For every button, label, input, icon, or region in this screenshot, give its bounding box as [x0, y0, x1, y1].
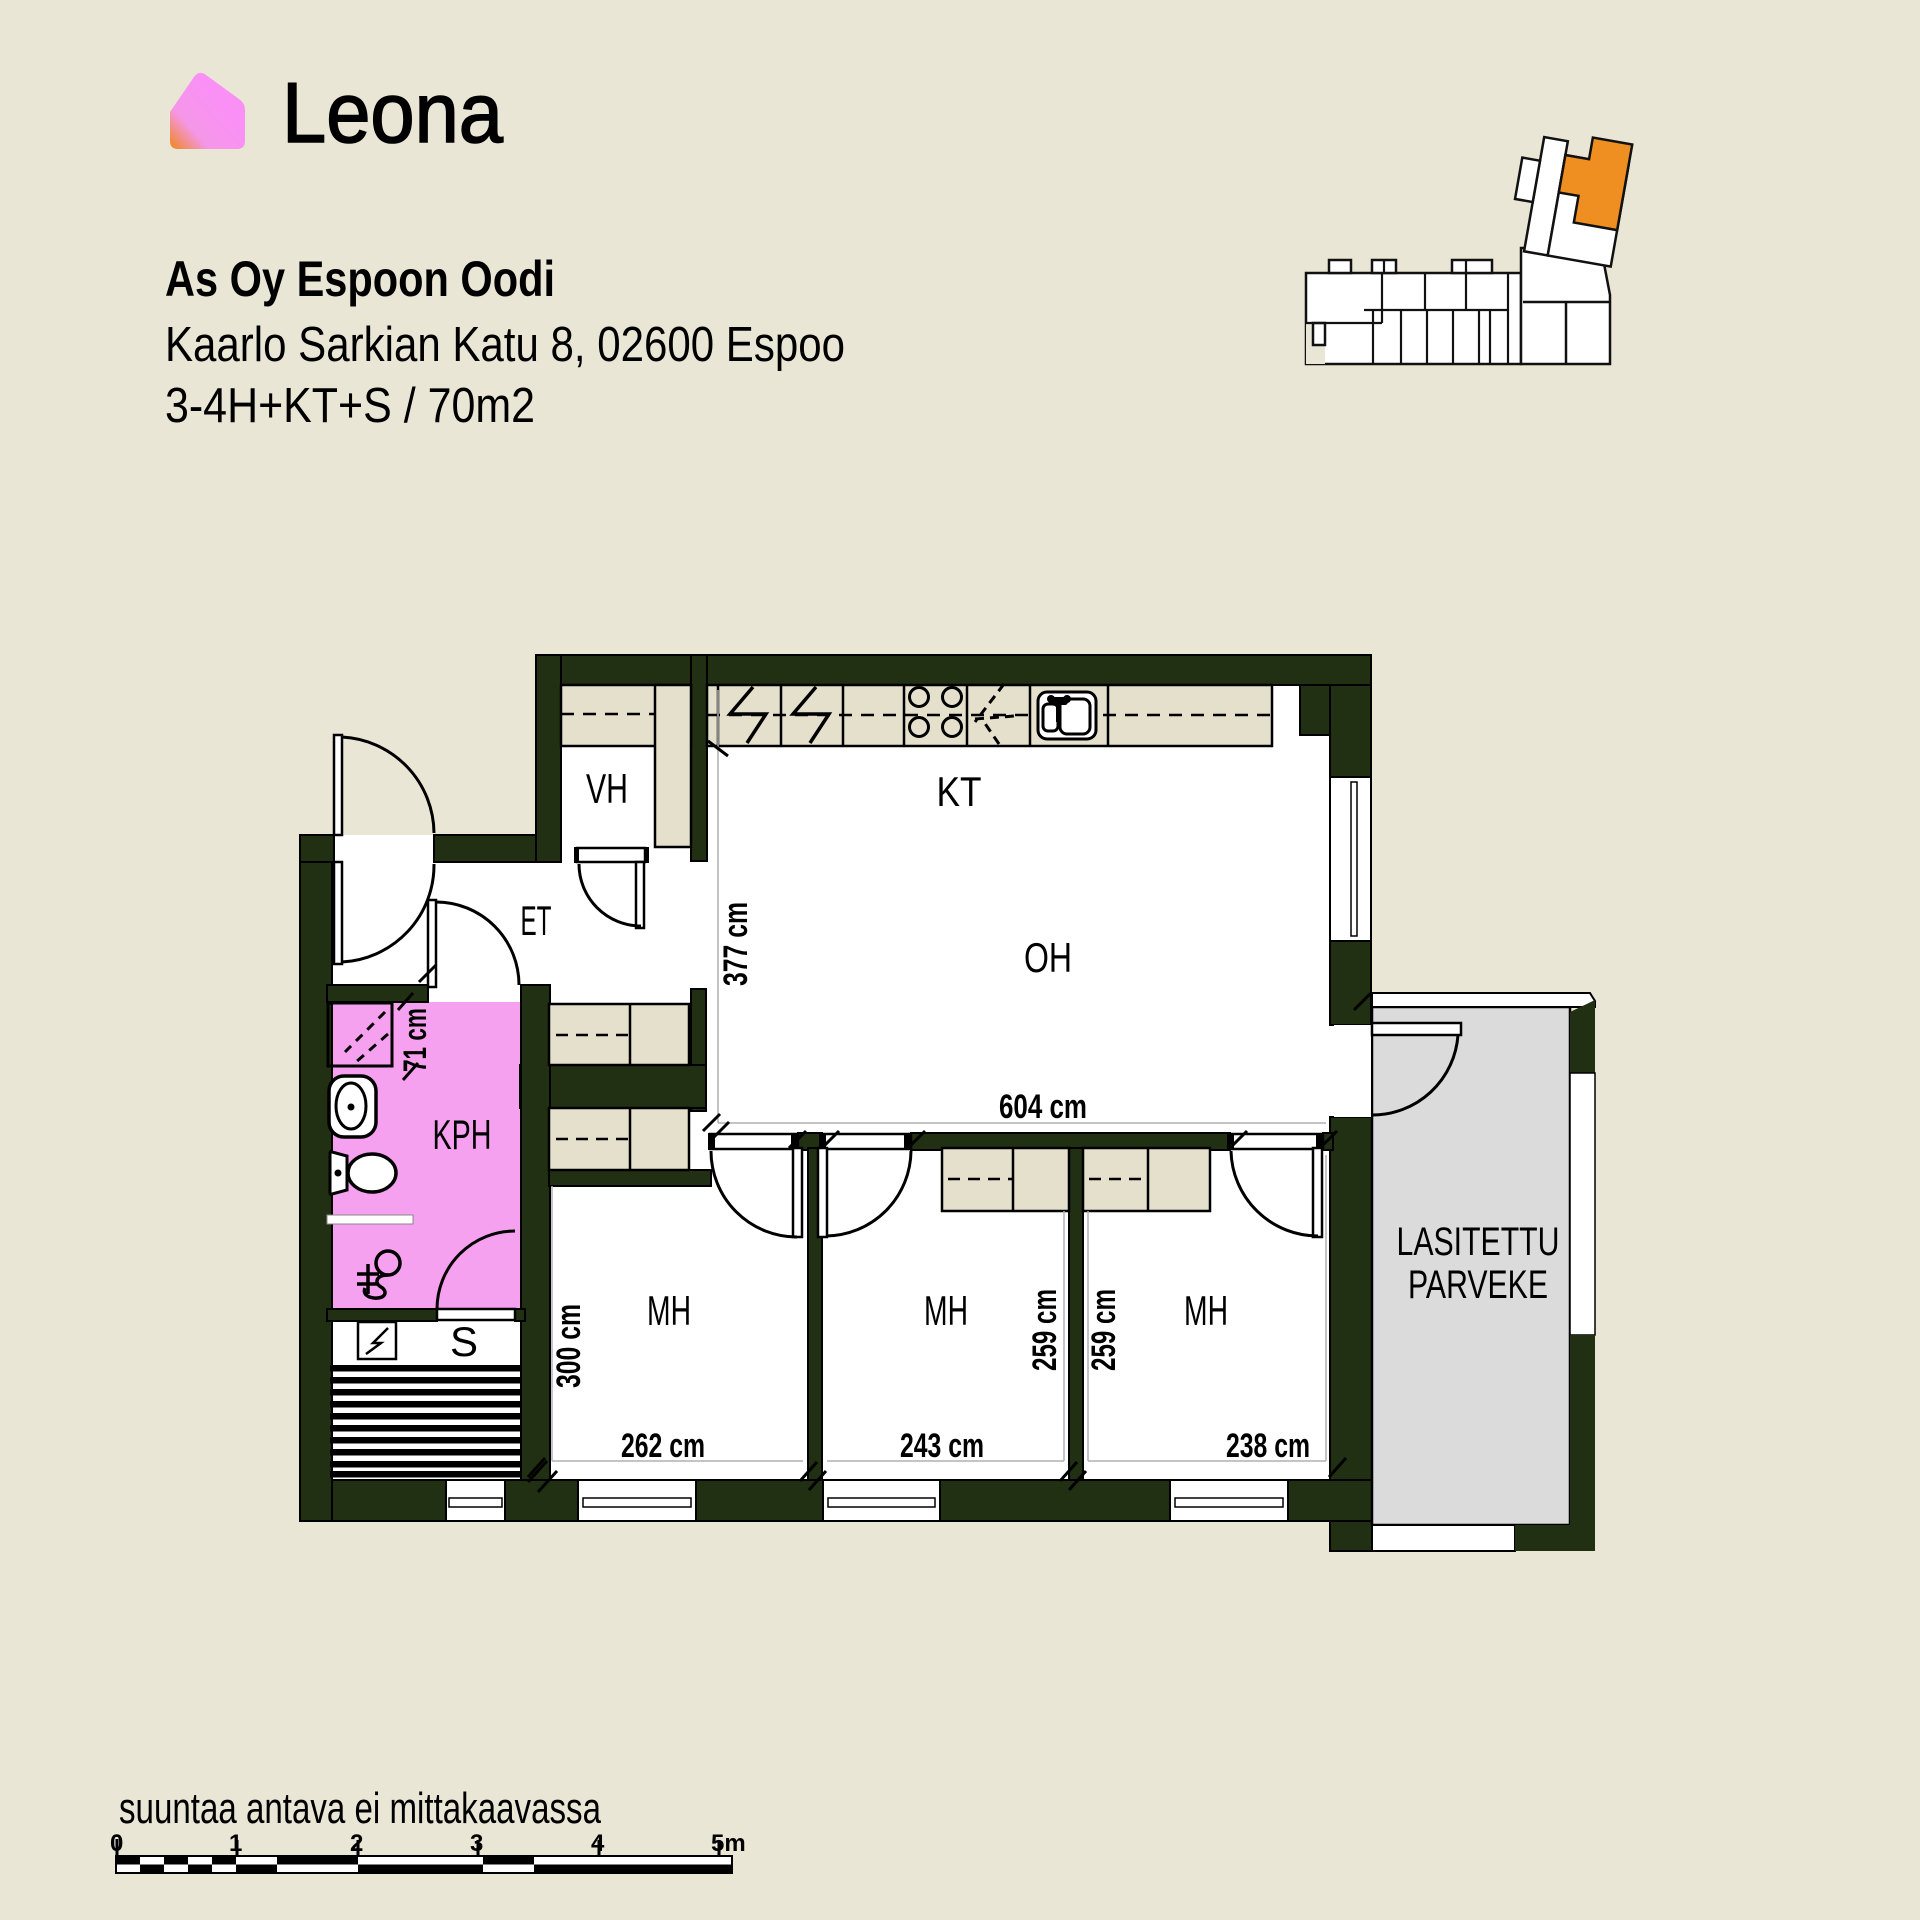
svg-text:VH: VH — [586, 765, 628, 812]
svg-text:MH: MH — [647, 1287, 691, 1334]
svg-text:238 cm: 238 cm — [1226, 1427, 1310, 1465]
svg-text:262 cm: 262 cm — [621, 1427, 705, 1465]
svg-text:71 cm: 71 cm — [397, 1008, 433, 1072]
svg-text:259 cm: 259 cm — [1085, 1289, 1123, 1371]
svg-text:ET: ET — [521, 897, 552, 944]
svg-text:As Oy Espoon Oodi: As Oy Espoon Oodi — [165, 251, 555, 307]
svg-text:3-4H+KT+S / 70m2: 3-4H+KT+S / 70m2 — [165, 379, 535, 433]
svg-text:243 cm: 243 cm — [900, 1427, 984, 1465]
svg-text:MH: MH — [1184, 1287, 1228, 1334]
svg-text:PARVEKE: PARVEKE — [1408, 1263, 1548, 1307]
svg-text:LASITETTU: LASITETTU — [1397, 1220, 1560, 1264]
svg-text:5m: 5m — [711, 1830, 746, 1857]
svg-text:OH: OH — [1024, 934, 1072, 981]
svg-text:KPH: KPH — [433, 1111, 492, 1158]
svg-text:Kaarlo Sarkian Katu 8, 02600 E: Kaarlo Sarkian Katu 8, 02600 Espoo — [165, 318, 845, 372]
svg-text:259 cm: 259 cm — [1026, 1289, 1064, 1371]
svg-text:377 cm: 377 cm — [717, 902, 755, 986]
svg-text:0: 0 — [110, 1830, 123, 1857]
svg-text:4: 4 — [591, 1830, 605, 1857]
svg-text:S: S — [450, 1318, 478, 1365]
svg-text:604 cm: 604 cm — [999, 1088, 1087, 1126]
svg-text:3: 3 — [470, 1830, 483, 1857]
svg-text:MH: MH — [924, 1287, 968, 1334]
svg-text:1: 1 — [229, 1830, 242, 1857]
svg-text:2: 2 — [350, 1830, 363, 1857]
svg-text:Leona: Leona — [282, 66, 504, 161]
svg-text:300 cm: 300 cm — [550, 1304, 588, 1388]
svg-text:KT: KT — [937, 768, 982, 815]
svg-text:suuntaa antava ei mittakaavass: suuntaa antava ei mittakaavassa — [119, 1784, 601, 1833]
